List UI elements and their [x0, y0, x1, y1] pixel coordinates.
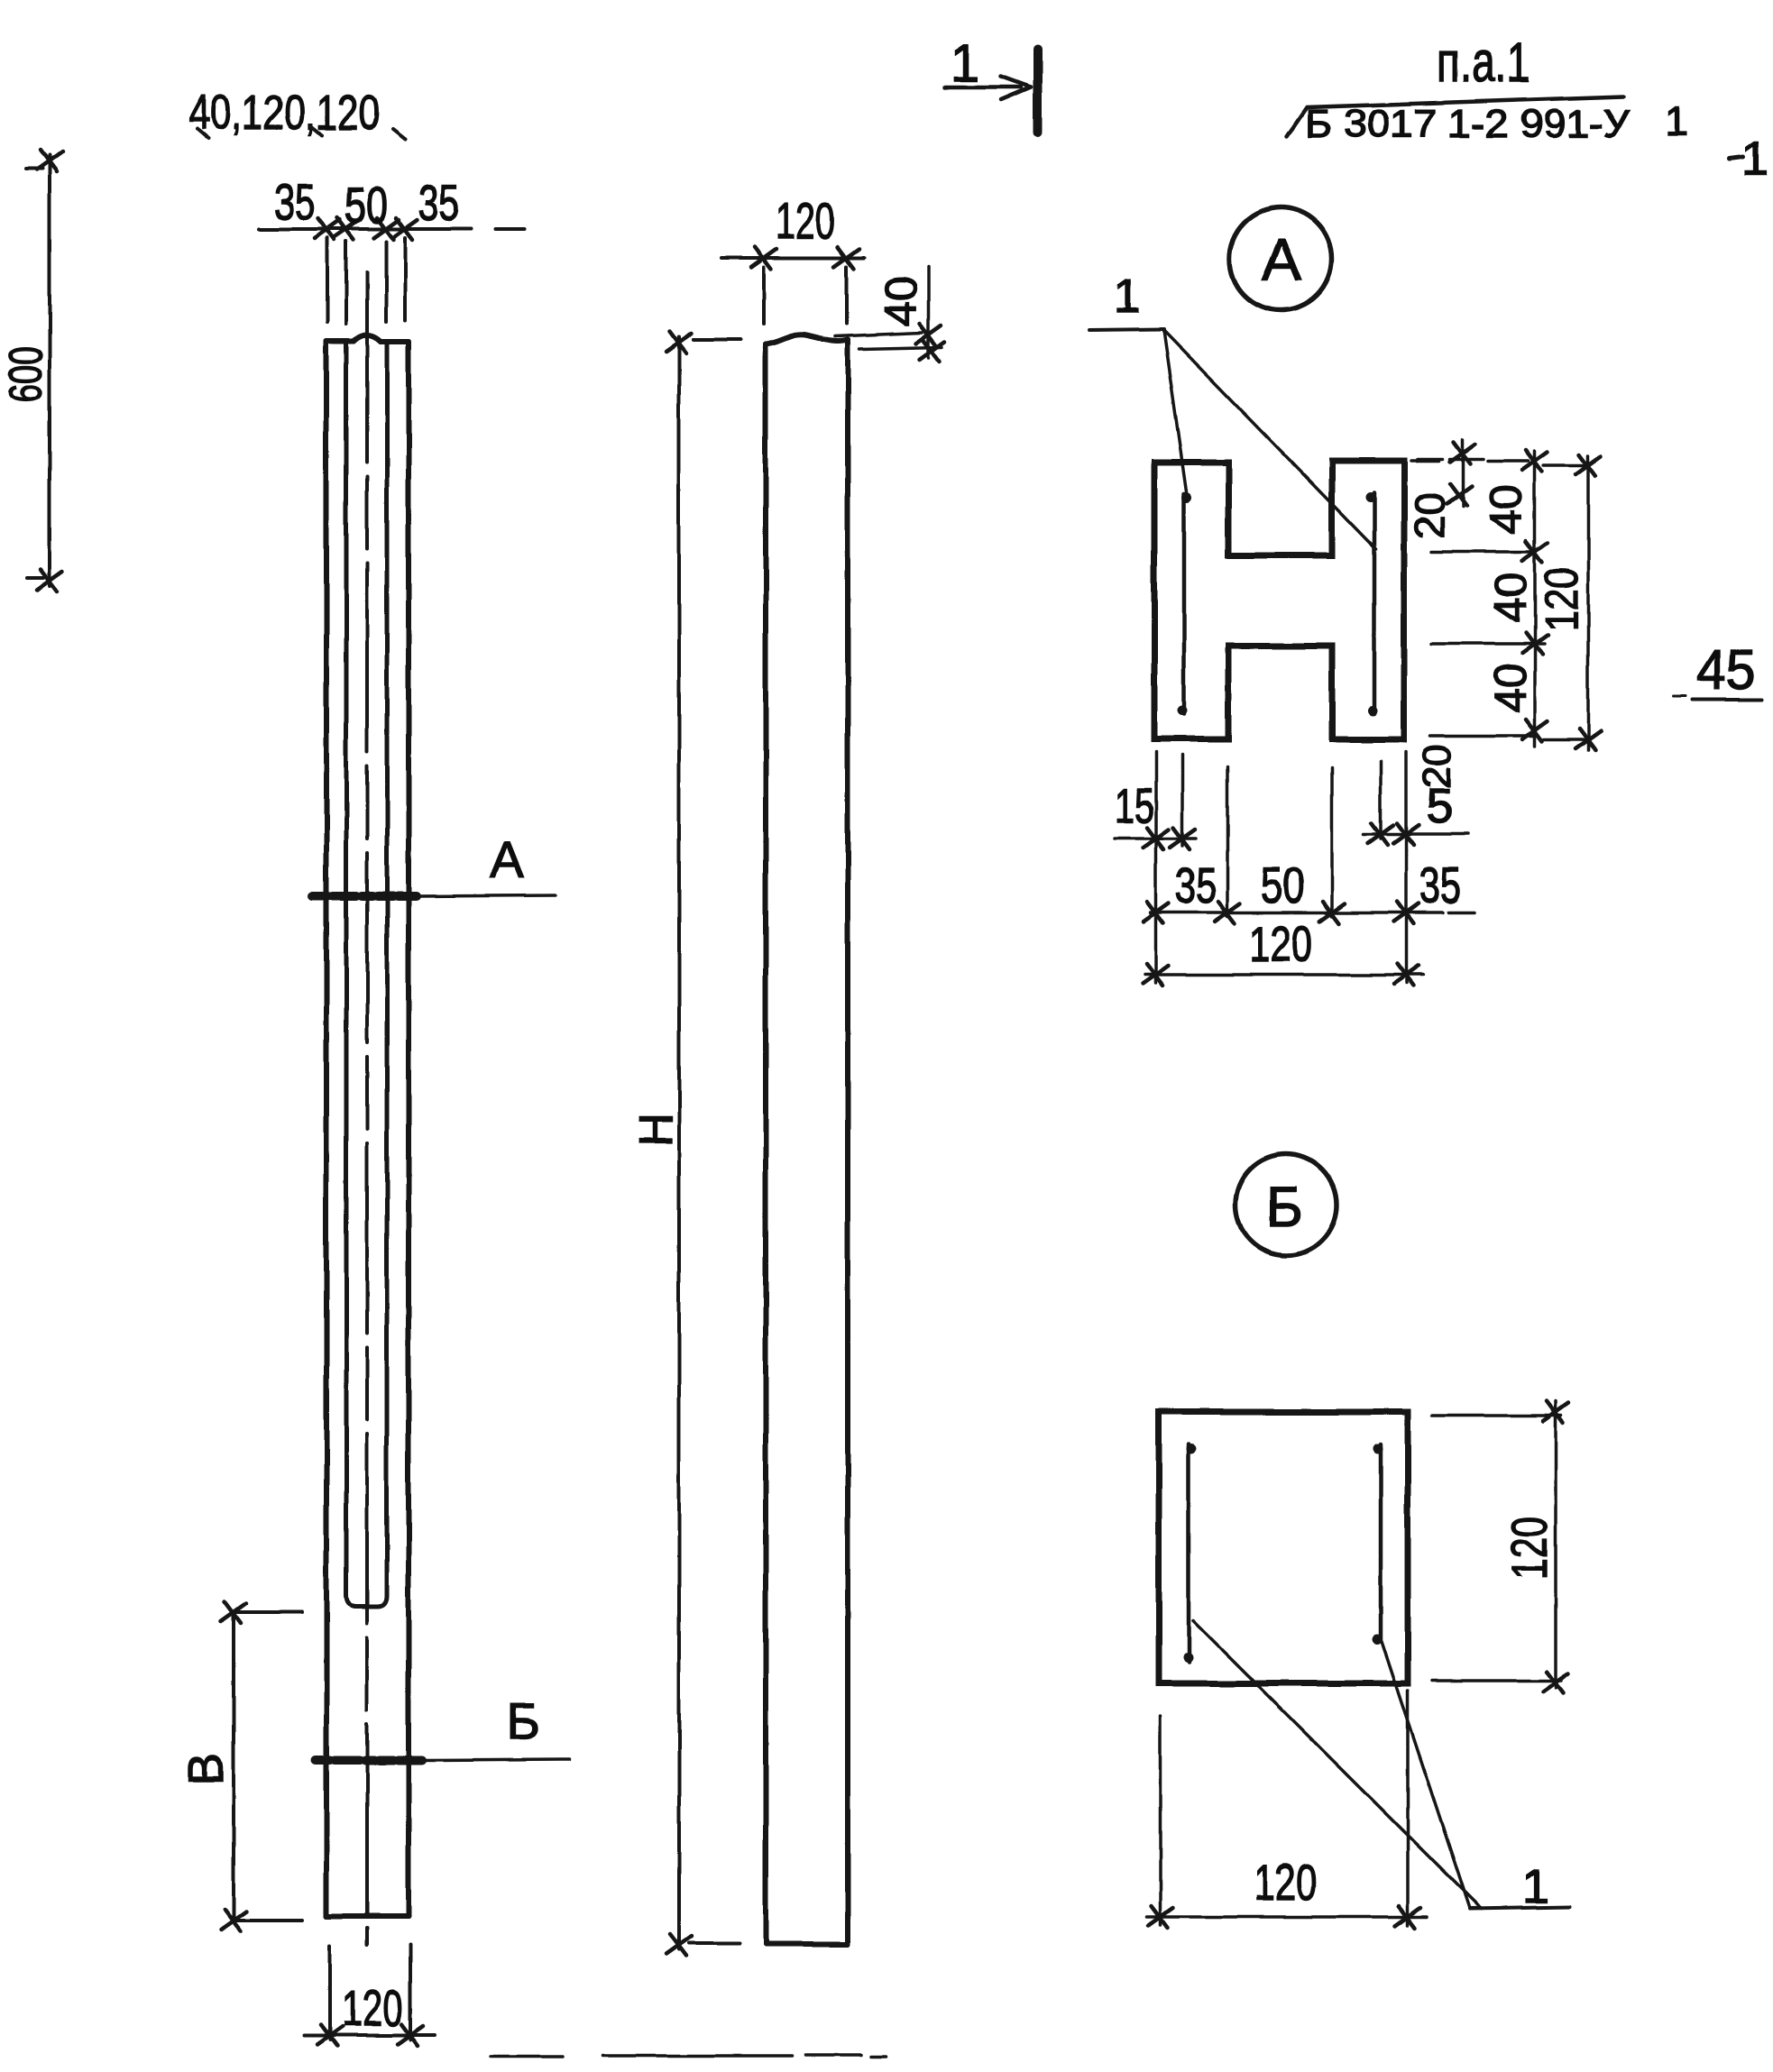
- svg-text:Б: Б: [1266, 1177, 1303, 1239]
- svg-text:40,120,120: 40,120,120: [188, 86, 380, 140]
- svg-text:1: 1: [1665, 97, 1688, 144]
- svg-text:Н: Н: [630, 1113, 683, 1147]
- svg-text:40: 40: [1485, 573, 1536, 623]
- svg-text:45: 45: [1696, 639, 1756, 701]
- svg-text:1: 1: [951, 34, 979, 93]
- svg-text:35: 35: [418, 174, 460, 231]
- svg-text:35: 35: [274, 173, 316, 230]
- svg-text:В: В: [179, 1753, 234, 1785]
- svg-text:1: 1: [1741, 132, 1768, 186]
- svg-text:А: А: [1262, 227, 1301, 292]
- svg-text:120: 120: [776, 192, 835, 249]
- svg-text:40: 40: [1481, 484, 1531, 535]
- svg-text:Б 3017 1-2 991-У: Б 3017 1-2 991-У: [1305, 102, 1631, 146]
- svg-text:35: 35: [1419, 857, 1461, 913]
- svg-text:15: 15: [1115, 779, 1154, 833]
- svg-text:40: 40: [1485, 663, 1536, 713]
- svg-text:А: А: [490, 831, 524, 888]
- svg-text:120: 120: [1536, 568, 1588, 631]
- svg-text:35: 35: [1175, 857, 1217, 913]
- svg-text:Б: Б: [507, 1692, 540, 1749]
- svg-text:120: 120: [1254, 1854, 1317, 1911]
- svg-text:1: 1: [1115, 270, 1141, 323]
- svg-text:5: 5: [1426, 779, 1453, 833]
- svg-text:п.а.1: п.а.1: [1437, 32, 1530, 94]
- svg-text:120: 120: [342, 1979, 403, 2036]
- svg-text:120: 120: [1249, 915, 1312, 972]
- svg-text:120: 120: [1501, 1517, 1557, 1580]
- svg-text:1: 1: [1522, 1859, 1549, 1913]
- svg-text:50: 50: [344, 177, 388, 234]
- svg-text:50: 50: [1261, 857, 1304, 913]
- svg-text:600: 600: [0, 345, 52, 403]
- svg-text:40: 40: [876, 276, 926, 326]
- svg-text:20: 20: [1406, 492, 1453, 538]
